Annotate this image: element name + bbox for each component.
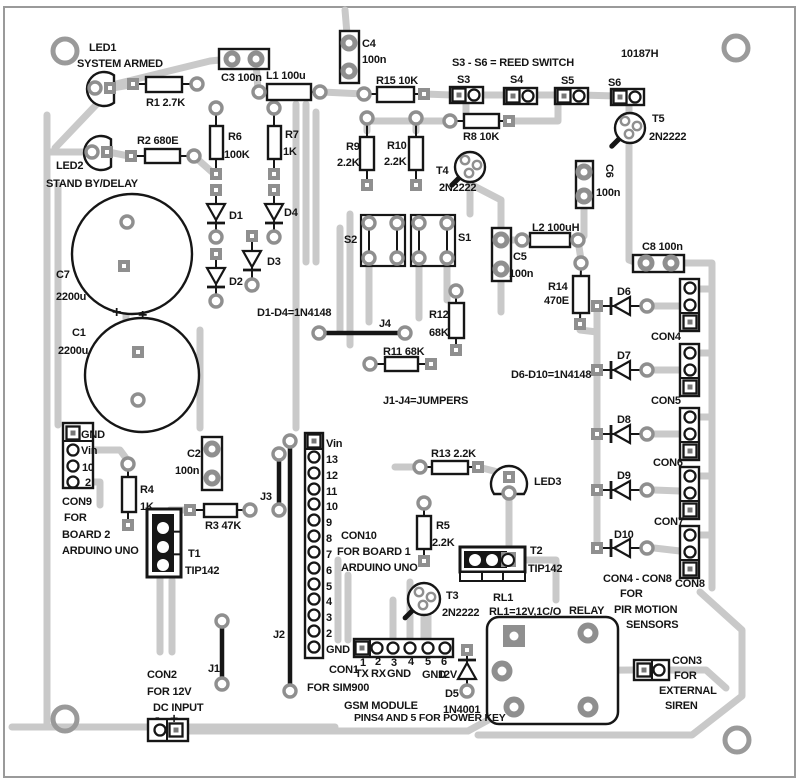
label: J4 xyxy=(379,318,392,330)
pin-round xyxy=(309,452,320,463)
pin-round xyxy=(461,156,469,164)
component-R2 xyxy=(125,149,200,163)
label: 2 xyxy=(375,656,381,668)
pin-round xyxy=(68,461,79,472)
component-R5 xyxy=(417,497,431,567)
pad-round xyxy=(86,146,98,158)
pad-round xyxy=(191,78,203,90)
pin-round xyxy=(68,477,79,488)
label: D10 xyxy=(614,529,634,541)
label: C6 xyxy=(603,164,615,178)
label: R15 10K xyxy=(376,75,418,87)
label: R3 47K xyxy=(205,520,241,532)
pin-round xyxy=(633,122,641,130)
electrolytic-capacitors xyxy=(72,194,199,432)
pin-round xyxy=(440,643,451,654)
label: CON2 xyxy=(147,669,177,681)
jumper-J4 xyxy=(313,327,411,339)
component-R3 xyxy=(184,504,256,517)
pad-round xyxy=(572,234,584,246)
jumper-J1 xyxy=(216,615,228,690)
component-R4 xyxy=(122,458,136,531)
pin-round xyxy=(157,541,169,553)
pin-round xyxy=(621,117,629,125)
pin-round xyxy=(419,601,427,609)
pad-round xyxy=(575,257,587,269)
connector-CON10 xyxy=(305,433,323,658)
pin-round xyxy=(685,530,696,541)
pin-round xyxy=(388,643,399,654)
pin-round xyxy=(685,300,696,311)
label: 100n xyxy=(362,54,387,66)
connector-CON3 xyxy=(634,660,669,680)
pad-round xyxy=(253,86,265,98)
pad-round xyxy=(313,327,325,339)
pin-round xyxy=(309,626,320,637)
pad-round xyxy=(641,542,653,554)
pad-round xyxy=(461,685,473,697)
label: S3 xyxy=(457,74,470,86)
label: S5 xyxy=(561,75,574,87)
label: TIP142 xyxy=(185,565,219,577)
label: S6 xyxy=(608,77,621,89)
label: GSM MODULE xyxy=(344,700,418,712)
label: D8 xyxy=(617,414,631,426)
pad-round xyxy=(89,82,101,94)
label: - xyxy=(155,709,160,725)
jumper-J3 xyxy=(273,448,285,516)
label: 2N2222 xyxy=(442,607,479,619)
connector-CON6 xyxy=(680,408,699,460)
label: R8 10K xyxy=(463,131,499,143)
component-C2 xyxy=(202,437,222,490)
component-T4 xyxy=(452,152,485,185)
label: R1 2.7K xyxy=(146,97,185,109)
label: T1 xyxy=(188,548,201,560)
component-R12 xyxy=(449,285,464,356)
label: L2 100uH xyxy=(532,222,580,234)
pad-round xyxy=(441,252,453,264)
label: J3 xyxy=(260,491,272,503)
label: C8 100n xyxy=(642,241,683,253)
jumper-J2 xyxy=(284,435,296,697)
pad-round xyxy=(284,435,296,447)
pin-round xyxy=(309,484,320,495)
trace xyxy=(474,186,501,228)
label: R11 68K xyxy=(383,346,425,358)
label: J1 xyxy=(208,663,220,675)
label: R7 xyxy=(285,129,299,141)
component-D2 xyxy=(207,256,225,307)
label: CON5 xyxy=(651,395,681,407)
label: S3 - S6 = REED SWITCH xyxy=(452,57,574,69)
pin-round xyxy=(473,161,481,169)
pin-round xyxy=(486,554,498,566)
switch-S1 xyxy=(411,215,455,266)
connector-CON4 xyxy=(680,279,699,331)
label: 2.2K xyxy=(337,157,360,169)
label: DC INPUT xyxy=(153,702,204,714)
pad-round xyxy=(641,300,653,312)
connector-CON7 xyxy=(680,467,699,519)
label: FOR xyxy=(64,512,87,524)
label: CON10 xyxy=(341,530,377,542)
label: + xyxy=(138,307,147,324)
pin-round xyxy=(309,468,320,479)
pin-round xyxy=(574,91,585,102)
label: PIR MOTION xyxy=(614,604,678,616)
label: C2 xyxy=(187,448,201,460)
label: CON9 xyxy=(62,496,92,508)
trace xyxy=(654,490,680,491)
switch-S2 xyxy=(361,215,405,266)
label: 470E xyxy=(544,295,569,307)
component-C6 xyxy=(576,161,594,208)
component-D5 xyxy=(458,644,476,697)
pad-round xyxy=(132,394,144,406)
label: 5 xyxy=(425,656,431,668)
component-C7 xyxy=(72,194,192,314)
pin-round xyxy=(309,642,320,653)
label: 2 xyxy=(85,477,91,489)
trace xyxy=(509,104,558,121)
label: 10 xyxy=(326,501,338,513)
label: CON4 xyxy=(651,331,682,343)
label: CON4 - CON8 xyxy=(603,573,672,585)
label: 6 xyxy=(441,656,447,668)
label: 10 xyxy=(82,462,94,474)
pad-round xyxy=(216,678,228,690)
label: 100n xyxy=(175,465,200,477)
pad-round xyxy=(210,295,222,307)
label: FOR SIM900 xyxy=(307,682,369,694)
pin-round xyxy=(685,365,696,376)
pad-round xyxy=(410,112,422,124)
label: 1K xyxy=(140,501,154,513)
component-C3 xyxy=(219,49,269,69)
pin-round xyxy=(427,593,435,601)
label: LED3 xyxy=(534,476,561,488)
label: D2 xyxy=(229,276,243,288)
component-R1 xyxy=(127,77,203,92)
component-R8 xyxy=(444,114,515,128)
pcb-layout-screenshot: LED1SYSTEM ARMEDR1 2.7KC3 100nL1 100uC41… xyxy=(0,0,800,784)
pad-round xyxy=(413,252,425,264)
pad-round xyxy=(273,504,285,516)
label: D4 xyxy=(284,207,299,219)
label: 1K xyxy=(283,146,297,158)
pin-round xyxy=(309,499,320,510)
label: T5 xyxy=(652,113,665,125)
pcb-layout-diagram: LED1SYSTEM ARMEDR1 2.7KC3 100nL1 100uC41… xyxy=(0,0,800,784)
pad-round xyxy=(363,252,375,264)
pin-round xyxy=(155,725,166,736)
trace xyxy=(629,145,637,263)
label: 11 xyxy=(326,486,337,498)
label: R9 xyxy=(346,141,360,153)
label: + xyxy=(170,710,178,726)
label: D6 xyxy=(617,286,631,298)
pin-round xyxy=(654,665,665,676)
label: R10 xyxy=(387,140,407,152)
label: 68K xyxy=(429,327,449,339)
component-C4 xyxy=(340,31,359,83)
label: C5 xyxy=(513,251,527,263)
component-R11 xyxy=(364,357,437,371)
component-D3 xyxy=(243,238,261,291)
component-R7 xyxy=(268,102,281,180)
label: GND xyxy=(326,644,350,656)
label: S2 xyxy=(344,234,357,246)
label: L1 100u xyxy=(266,70,306,82)
pad-round xyxy=(361,112,373,124)
label: Vin xyxy=(81,445,98,457)
label: 100n xyxy=(596,187,621,199)
pin-round xyxy=(309,610,320,621)
pad-round xyxy=(450,285,462,297)
label: 1N4001 xyxy=(443,704,480,716)
component-R6 xyxy=(210,102,223,180)
pad-round xyxy=(391,252,403,264)
label: ARDUINO UNO xyxy=(62,545,139,557)
label: SIREN xyxy=(665,700,698,712)
label: SENSORS xyxy=(626,619,678,631)
label: CON3 xyxy=(672,655,702,667)
label: LED2 xyxy=(56,160,83,172)
pad-round xyxy=(516,234,528,246)
label: 2.2K xyxy=(384,156,407,168)
pin-round xyxy=(309,531,320,542)
label: RL1=12V,1C/O xyxy=(489,606,562,618)
label: 13 xyxy=(326,454,338,466)
pin-round xyxy=(685,471,696,482)
component-R15 xyxy=(358,87,430,102)
pad-round xyxy=(210,231,222,243)
mounting-hole xyxy=(724,36,748,60)
pad-round xyxy=(641,364,653,376)
pad-round xyxy=(216,615,228,627)
label: 2.2K xyxy=(432,537,455,549)
pin-round xyxy=(685,547,696,558)
label: R12 xyxy=(429,309,449,321)
label: 7 xyxy=(326,549,332,561)
trace xyxy=(580,330,597,332)
label: 6 xyxy=(326,565,332,577)
label: 9 xyxy=(326,517,332,529)
pad-round xyxy=(418,497,430,509)
label: 4 xyxy=(326,596,333,608)
label: R13 2.2K xyxy=(431,448,476,460)
label: FOR xyxy=(620,588,643,600)
pad-round xyxy=(363,217,375,229)
label: R6 xyxy=(228,131,242,143)
pad-round xyxy=(413,217,425,229)
pad-round xyxy=(273,448,285,460)
label: ARDUINO UNO xyxy=(341,562,418,574)
component-L1 xyxy=(253,84,326,100)
component-T2 xyxy=(460,547,525,581)
connector-CON2 xyxy=(148,719,188,741)
pad-round xyxy=(391,217,403,229)
label: R5 xyxy=(436,520,450,532)
switch-S4 xyxy=(504,88,537,104)
pad-round xyxy=(503,487,515,499)
label: S1 xyxy=(458,232,471,244)
pad-round xyxy=(121,216,133,228)
pin-round xyxy=(157,522,169,534)
label: 5 xyxy=(326,581,332,593)
component-T5 xyxy=(612,113,645,146)
component-C1 xyxy=(85,318,199,432)
label: D9 xyxy=(617,470,631,482)
trace xyxy=(654,548,680,551)
label: CON7 xyxy=(654,516,684,528)
label: FOR xyxy=(674,670,697,682)
label: S4 xyxy=(510,74,524,86)
pin-round xyxy=(372,643,383,654)
pad-round xyxy=(268,102,280,114)
label: Vin xyxy=(326,438,343,450)
pad-round xyxy=(641,428,653,440)
label: CON6 xyxy=(653,457,683,469)
label: 2 xyxy=(326,628,332,640)
pad-round xyxy=(441,217,453,229)
label: D6-D10=1N4148 xyxy=(511,369,591,381)
mounting-hole xyxy=(53,39,77,63)
label: T4 xyxy=(436,165,450,177)
label: 2200u xyxy=(58,345,88,357)
label: PINS4 AND 5 FOR POWER KEY xyxy=(354,712,506,724)
label: RL1 xyxy=(493,592,513,604)
pin-round xyxy=(469,90,480,101)
label: FOR 12V xyxy=(147,686,192,698)
label: RELAY xyxy=(569,605,605,617)
component-R13 xyxy=(414,461,484,474)
label: 100K xyxy=(224,149,250,161)
component-RL1 xyxy=(487,617,618,724)
pad-round xyxy=(284,685,296,697)
pin-round xyxy=(685,348,696,359)
pin-round xyxy=(309,547,320,558)
label: J1-J4=JUMPERS xyxy=(383,395,468,407)
label: 2200u xyxy=(56,291,86,303)
label: GND xyxy=(387,668,411,680)
label: TX xyxy=(355,668,370,680)
label: D5 xyxy=(445,688,459,700)
label: 3 xyxy=(326,612,332,624)
pin-round xyxy=(68,445,79,456)
label: C3 100n xyxy=(221,72,262,84)
component-D4 xyxy=(265,192,283,243)
component-L2 xyxy=(516,233,584,247)
label: D1 xyxy=(229,210,243,222)
component-R14 xyxy=(573,257,589,330)
pin-round xyxy=(469,554,481,566)
pad-round xyxy=(314,86,326,98)
label: BOARD 2 xyxy=(62,529,110,541)
pad-round xyxy=(641,484,653,496)
pin-round xyxy=(309,563,320,574)
pad-round xyxy=(399,327,411,339)
pad-round xyxy=(364,358,376,370)
mounting-hole xyxy=(725,728,749,752)
tact-switches xyxy=(361,215,455,266)
label: RX xyxy=(371,668,387,680)
label: C7 xyxy=(56,269,70,281)
pin-round xyxy=(685,488,696,499)
label: T3 xyxy=(446,590,459,602)
label: 12 xyxy=(326,470,338,482)
label: D3 xyxy=(267,256,281,268)
pin-round xyxy=(465,169,473,177)
label: LED1 xyxy=(89,42,116,54)
switch-S3 xyxy=(450,87,483,103)
switch-S6 xyxy=(611,89,644,105)
pin-round xyxy=(502,554,514,566)
connector-CON1 xyxy=(354,639,453,657)
component-LED1 xyxy=(87,72,116,106)
label: R2 680E xyxy=(137,135,178,147)
component-R10 xyxy=(409,112,423,191)
label: + xyxy=(112,304,121,321)
pad-round xyxy=(210,102,222,114)
pad-round xyxy=(244,504,256,516)
pin-round xyxy=(523,91,534,102)
label: 8 xyxy=(326,533,332,545)
connector-CON5 xyxy=(680,344,699,396)
pad-round xyxy=(188,150,200,162)
label: 100n xyxy=(509,268,534,280)
label: R14 xyxy=(548,281,569,293)
label: STAND BY/DELAY xyxy=(46,178,139,190)
label: 12V xyxy=(438,669,458,681)
pin-round xyxy=(405,643,416,654)
pad-round xyxy=(444,115,456,127)
pin-round xyxy=(423,643,434,654)
component-LED3 xyxy=(491,466,527,499)
pin-round xyxy=(685,412,696,423)
label: TIP142 xyxy=(528,563,562,575)
pin-round xyxy=(685,283,696,294)
component-T1 xyxy=(147,509,181,577)
label: D7 xyxy=(617,350,631,362)
pad-round xyxy=(246,279,258,291)
label: SYSTEM ARMED xyxy=(77,58,163,70)
component-D1 xyxy=(207,192,225,243)
switch-S5 xyxy=(555,88,588,104)
pin-round xyxy=(309,594,320,605)
label: 2N2222 xyxy=(439,182,476,194)
label: R4 xyxy=(140,484,155,496)
pad-round xyxy=(358,88,370,100)
pin-round xyxy=(309,579,320,590)
label: D1-D4=1N4148 xyxy=(257,307,331,319)
label: J2 xyxy=(273,629,285,641)
label: EXTERNAL xyxy=(659,685,717,697)
pad-round xyxy=(414,461,426,473)
pin-round xyxy=(415,588,423,596)
label: T2 xyxy=(530,545,543,557)
label: 2N2222 xyxy=(649,131,686,143)
pin-round xyxy=(685,429,696,440)
component-C8 xyxy=(633,255,684,273)
pad-round xyxy=(122,458,134,470)
label: C4 xyxy=(362,38,377,50)
label: C1 xyxy=(72,327,86,339)
label: GND xyxy=(81,429,105,441)
pin-round xyxy=(157,559,169,571)
component-R9 xyxy=(360,112,374,191)
